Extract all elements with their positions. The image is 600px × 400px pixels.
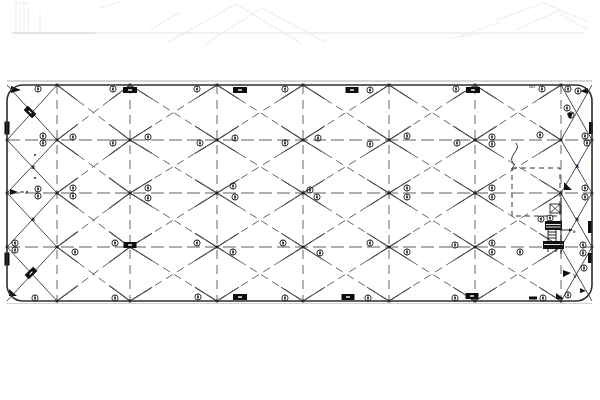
- section-marker-dot: [234, 196, 236, 198]
- brace-end-solid: [367, 126, 389, 140]
- brace-end-solid: [539, 140, 561, 154]
- section-marker-dot: [491, 251, 493, 253]
- section-marker-dot: [199, 142, 201, 144]
- node-dot: [216, 139, 219, 142]
- section-marker-dot: [454, 297, 456, 299]
- section-marker-dot: [567, 294, 569, 296]
- section-marker-dot: [114, 242, 116, 244]
- beam-tag-rotated: [24, 106, 37, 119]
- section-marker: [540, 295, 546, 301]
- grid-layer: [7, 85, 592, 301]
- section-marker: [314, 194, 320, 200]
- brace-end-solid: [217, 233, 239, 247]
- text-layer: xxxxNOaV: [31, 84, 580, 279]
- section-marker: [35, 186, 41, 192]
- section-marker-dot: [584, 196, 586, 198]
- brace-end-solid: [57, 85, 78, 101]
- node-dot: [474, 139, 477, 142]
- section-marker-dot: [197, 296, 199, 298]
- beam-tag: [123, 87, 137, 93]
- section-marker-dot: [74, 251, 76, 253]
- section-marker: [230, 249, 236, 255]
- section-marker-dot: [582, 252, 584, 254]
- section-marker-dot: [406, 135, 408, 137]
- brace-end-solid: [195, 193, 217, 207]
- brace-end-solid: [217, 140, 239, 154]
- section-marker: [489, 141, 495, 147]
- section-marker-dot: [584, 135, 586, 137]
- brace-end-solid: [109, 124, 130, 140]
- section-marker-dot: [491, 187, 493, 189]
- section-marker-dot: [566, 107, 568, 109]
- node-dot: [216, 192, 219, 195]
- section-marker: [35, 193, 41, 199]
- brace-end-solid: [109, 193, 130, 208]
- section-marker-dot: [284, 88, 286, 90]
- brace-end-solid: [109, 140, 130, 155]
- section-marker: [584, 140, 590, 146]
- brace-end-solid: [389, 140, 411, 154]
- section-marker: [365, 295, 371, 301]
- flag-layer: [9, 86, 588, 299]
- section-marker-dot: [114, 297, 116, 299]
- section-marker: [453, 86, 459, 92]
- brace-end-solid: [195, 247, 217, 261]
- section-marker-dot: [319, 252, 321, 254]
- ghost-line: [150, 12, 180, 30]
- section-marker: [580, 242, 586, 248]
- section-marker: [194, 240, 200, 246]
- section-marker: [35, 86, 41, 92]
- section-marker: [12, 247, 18, 253]
- section-marker-dot: [491, 143, 493, 145]
- ghost-line: [168, 4, 236, 42]
- brace-end-solid: [367, 193, 389, 207]
- section-marker: [452, 242, 458, 248]
- section-marker: [580, 250, 586, 256]
- beam-tag: [346, 87, 359, 93]
- beam-tag: [124, 242, 137, 248]
- beam-tag: [342, 294, 355, 300]
- beam-tag-text-mark: [470, 295, 474, 296]
- section-marker-dot: [369, 89, 371, 91]
- annotation-text: x: [575, 162, 580, 170]
- brace-end-solid: [453, 247, 475, 261]
- section-marker: [40, 140, 46, 146]
- section-marker-dot: [582, 244, 584, 246]
- section-marker-dot: [455, 88, 457, 90]
- section-marker-dot: [491, 136, 493, 138]
- ghost-line: [496, 3, 544, 20]
- section-marker: [280, 240, 286, 246]
- section-marker-dot: [406, 196, 408, 198]
- beam-tag-text-mark: [471, 89, 475, 90]
- section-marker: [404, 194, 410, 200]
- brace-end-solid: [109, 247, 130, 262]
- section-marker-dot: [34, 297, 36, 299]
- beam-tag: [466, 87, 480, 93]
- section-marker-dot: [37, 195, 39, 197]
- brace-end-solid: [453, 140, 475, 154]
- node-dot: [560, 139, 563, 142]
- section-marker: [315, 135, 321, 141]
- section-marker-dot: [539, 134, 541, 136]
- brace-end-solid: [367, 247, 389, 261]
- section-marker-dot: [14, 249, 16, 251]
- section-marker-dot: [196, 242, 198, 244]
- section-marker: [582, 185, 588, 191]
- section-marker-dot: [112, 142, 114, 144]
- section-marker-dot: [369, 143, 371, 145]
- brace-end-solid: [281, 193, 303, 207]
- section-marker: [404, 133, 410, 139]
- section-marker-dot: [72, 195, 74, 197]
- section-marker: [565, 86, 571, 92]
- beam-tag: [233, 294, 247, 300]
- tag-layer: [5, 87, 594, 300]
- beam-tag-text-mark: [128, 89, 132, 90]
- flag-marker: [10, 189, 18, 195]
- section-marker: [145, 195, 151, 201]
- flag-marker: [564, 182, 572, 190]
- section-marker: [110, 140, 116, 146]
- section-marker: [517, 249, 523, 255]
- section-marker: [282, 295, 288, 301]
- section-marker-dot: [456, 142, 458, 144]
- flag-marker: [556, 293, 564, 299]
- brace-end-solid: [281, 247, 303, 261]
- section-marker-dot: [37, 88, 39, 90]
- section-marker: [452, 295, 458, 301]
- brace-end-solid: [539, 179, 561, 193]
- ghost-line: [544, 3, 588, 22]
- section-marker: [565, 292, 571, 298]
- section-marker: [194, 86, 200, 92]
- section-marker: [32, 295, 38, 301]
- section-marker: [232, 135, 238, 141]
- section-marker: [564, 105, 570, 111]
- brace-end-solid: [281, 179, 303, 193]
- beam-tag-text-mark: [128, 244, 132, 245]
- brace-end-solid: [303, 179, 325, 193]
- section-marker-dot: [540, 218, 542, 220]
- section-marker: [367, 87, 373, 93]
- beam-tag-text-mark: [350, 89, 354, 90]
- section-marker-dot: [232, 251, 234, 253]
- node-dot: [388, 246, 391, 249]
- brace-end-solid: [453, 179, 475, 193]
- section-marker: [282, 86, 288, 92]
- brace-end-solid: [453, 126, 475, 140]
- section-marker-dot: [147, 187, 149, 189]
- section-marker-dot: [491, 242, 493, 244]
- section-marker-dot: [549, 217, 551, 219]
- brace-end-solid: [195, 126, 217, 140]
- brace-end-solid: [303, 140, 325, 154]
- section-marker-dot: [112, 88, 114, 90]
- section-marker: [40, 133, 46, 139]
- beam-tag-text-mark: [346, 296, 350, 297]
- section-marker-dot: [147, 197, 149, 199]
- section-marker: [538, 216, 544, 222]
- brace-end-solid: [109, 178, 130, 193]
- brace-end-solid: [57, 140, 78, 155]
- brace-end-solid: [389, 233, 411, 247]
- brace-end-solid: [281, 126, 303, 140]
- brace-end-solid: [57, 124, 78, 140]
- flag-marker: [563, 270, 571, 277]
- section-marker: [110, 86, 116, 92]
- section-marker-dot: [519, 251, 521, 253]
- brace-end-solid: [130, 126, 152, 140]
- marker-layer: [12, 86, 590, 301]
- brace-end-solid: [130, 287, 152, 301]
- section-marker-dot: [317, 137, 319, 139]
- section-marker: [367, 141, 373, 147]
- node-dot: [56, 192, 59, 195]
- section-marker: [70, 185, 76, 191]
- section-marker: [112, 295, 118, 301]
- section-marker: [489, 194, 495, 200]
- section-marker: [404, 249, 410, 255]
- brace-end-solid: [389, 287, 411, 301]
- brace-end-solid: [389, 85, 411, 99]
- node-dot: [56, 139, 59, 142]
- node-dot: [302, 246, 305, 249]
- section-marker-dot: [584, 187, 586, 189]
- node-dot: [388, 192, 391, 195]
- node-dot: [56, 246, 59, 249]
- section-marker-dot: [232, 185, 234, 187]
- point-dot: [26, 191, 28, 193]
- section-marker-dot: [491, 196, 493, 198]
- section-marker-dot: [72, 136, 74, 138]
- point-dot: [34, 177, 36, 179]
- point-dot: [34, 154, 36, 156]
- equipment-block: [545, 221, 562, 230]
- beam-tag: [529, 297, 537, 300]
- section-marker-dot: [454, 244, 456, 246]
- section-marker-dot: [316, 196, 318, 198]
- section-marker: [547, 215, 553, 221]
- brace-end-solid: [475, 126, 497, 140]
- section-marker-dot: [367, 297, 369, 299]
- section-marker: [581, 265, 587, 271]
- section-marker-dot: [583, 267, 585, 269]
- section-marker: [489, 240, 495, 246]
- section-marker: [197, 140, 203, 146]
- node-dot: [474, 192, 477, 195]
- section-marker: [582, 194, 588, 200]
- brace-end-solid: [303, 247, 325, 261]
- beam-tag-text-mark: [238, 296, 242, 297]
- section-marker: [70, 134, 76, 140]
- section-marker: [317, 250, 323, 256]
- break-line-curve: [512, 143, 518, 169]
- section-marker-dot: [14, 242, 16, 244]
- section-marker: [230, 183, 236, 189]
- section-marker: [70, 193, 76, 199]
- section-marker: [454, 140, 460, 146]
- brace-end-solid: [539, 247, 561, 261]
- section-marker-dot: [196, 88, 198, 90]
- section-marker-dot: [72, 187, 74, 189]
- section-marker: [404, 185, 410, 191]
- node-dot: [129, 139, 132, 142]
- brace-end-solid: [281, 287, 303, 301]
- section-marker: [582, 133, 588, 139]
- section-marker: [12, 240, 18, 246]
- brace-end-solid: [130, 247, 152, 261]
- ghost-line: [205, 8, 262, 44]
- section-marker-dot: [234, 137, 236, 139]
- section-marker: [489, 134, 495, 140]
- drawing-canvas: xxxxNOaV: [0, 0, 600, 400]
- brace-end-solid: [130, 140, 152, 154]
- beam-tag: [466, 293, 479, 299]
- ghost-line: [460, 22, 500, 36]
- brace-end-solid: [303, 126, 325, 140]
- node-dot: [216, 246, 219, 249]
- section-marker-dot: [284, 142, 286, 144]
- section-marker: [489, 249, 495, 255]
- section-marker-dot: [284, 297, 286, 299]
- beam-tag: [233, 87, 247, 93]
- brace-end-solid: [367, 179, 389, 193]
- section-marker: [489, 185, 495, 191]
- node-dot: [388, 139, 391, 142]
- beam-tag-rect: [529, 297, 537, 300]
- detail-layer: [512, 143, 564, 254]
- brace-end-solid: [195, 140, 217, 154]
- section-marker-dot: [406, 251, 408, 253]
- section-marker-dot: [369, 242, 371, 244]
- section-marker: [195, 294, 201, 300]
- brace-end-solid: [57, 286, 78, 301]
- brace-end-solid: [453, 193, 475, 207]
- ghost-line: [100, 2, 120, 8]
- brace-end-solid: [57, 232, 78, 247]
- bracing-plan-svg: xxxxNOaV: [0, 0, 600, 400]
- section-marker-dot: [586, 142, 588, 144]
- section-marker: [145, 185, 151, 191]
- section-marker-dot: [42, 142, 44, 144]
- section-marker: [367, 240, 373, 246]
- brace-end-solid: [453, 233, 475, 247]
- section-marker: [112, 240, 118, 246]
- brace-end-solid: [367, 287, 389, 301]
- node-dot: [302, 192, 305, 195]
- brace-end-solid: [303, 233, 325, 247]
- section-marker-dot: [567, 88, 569, 90]
- brace-end-solid: [195, 179, 217, 193]
- ghost-layer: [12, 2, 588, 44]
- section-marker: [282, 140, 288, 146]
- border-shadow-layer: [7, 81, 592, 304]
- brace-end-solid: [281, 140, 303, 154]
- brace-end-solid: [303, 193, 325, 207]
- brace-end-solid: [57, 193, 78, 208]
- section-marker-dot: [282, 242, 284, 244]
- annotation-text: a: [572, 228, 575, 234]
- section-marker: [145, 134, 151, 140]
- node-dot: [302, 139, 305, 142]
- section-marker: [72, 249, 78, 255]
- section-marker-dot: [406, 187, 408, 189]
- section-marker-dot: [541, 88, 543, 90]
- brace-end-solid: [303, 287, 325, 301]
- section-marker-dot: [577, 90, 579, 92]
- section-marker-dot: [542, 297, 544, 299]
- section-marker: [539, 86, 545, 92]
- section-marker: [232, 194, 238, 200]
- section-marker-dot: [147, 136, 149, 138]
- section-marker-dot: [42, 135, 44, 137]
- node-dot: [474, 246, 477, 249]
- section-marker: [537, 132, 543, 138]
- section-marker-dot: [309, 189, 311, 191]
- node-dot: [129, 192, 132, 195]
- brace-end-solid: [303, 85, 325, 99]
- ghost-line: [516, 10, 560, 30]
- section-marker-dot: [37, 188, 39, 190]
- beam-tag-text-mark: [238, 89, 242, 90]
